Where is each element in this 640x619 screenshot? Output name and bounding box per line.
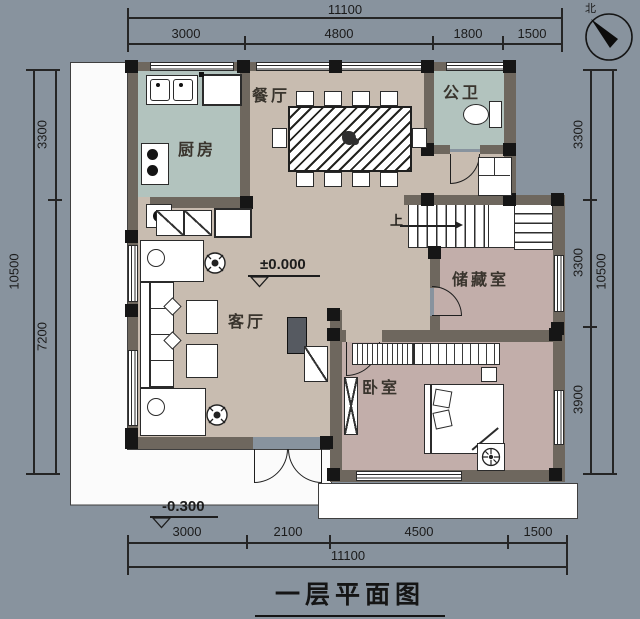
column bbox=[125, 60, 138, 73]
level-marker-label: -0.300 bbox=[162, 498, 205, 515]
wall bbox=[128, 437, 253, 449]
floor-plan-canvas: 11100 3000 4800 1800 1500 3300 7200 1050… bbox=[0, 0, 640, 619]
headboard-line bbox=[430, 385, 432, 453]
dimension-label: 3000 bbox=[146, 27, 226, 41]
dimension-label: 10500 bbox=[595, 232, 608, 312]
hall-closet bbox=[478, 157, 512, 196]
window bbox=[150, 62, 234, 71]
wardrobe bbox=[352, 343, 414, 365]
column bbox=[327, 468, 340, 481]
floor-lamp-icon bbox=[202, 250, 228, 276]
sofa-pillow bbox=[147, 398, 165, 416]
window bbox=[446, 62, 504, 71]
column bbox=[551, 193, 564, 206]
wall bbox=[382, 330, 565, 342]
dimension-line bbox=[128, 17, 562, 19]
dimension-line bbox=[128, 566, 568, 568]
dimension-line bbox=[128, 43, 562, 45]
closet-shelf-line bbox=[494, 157, 495, 175]
dining-chair bbox=[380, 91, 398, 106]
dimension-extension bbox=[127, 8, 129, 52]
column bbox=[421, 60, 434, 73]
toilet-bowl bbox=[463, 104, 489, 125]
sink-basin bbox=[173, 79, 193, 101]
tv-stand bbox=[304, 346, 328, 382]
level-marker-label: ±0.000 bbox=[260, 256, 306, 273]
fridge bbox=[202, 74, 242, 106]
dimension-label: 1500 bbox=[492, 27, 572, 41]
window bbox=[128, 350, 138, 426]
dining-chair bbox=[380, 172, 398, 187]
window bbox=[554, 390, 564, 445]
column bbox=[428, 246, 441, 259]
room-label-storage: 储藏室 bbox=[452, 266, 509, 290]
column bbox=[125, 230, 138, 243]
centerpiece-plant-icon bbox=[352, 138, 359, 145]
column bbox=[237, 60, 250, 73]
closet-shelf-line bbox=[479, 175, 510, 176]
dimension-label: 11100 bbox=[305, 3, 385, 16]
column bbox=[549, 328, 562, 341]
porch-bedroom bbox=[318, 483, 578, 519]
dining-chair bbox=[296, 91, 314, 106]
coffee-table bbox=[186, 344, 218, 378]
north-arrow-icon bbox=[581, 3, 635, 63]
dimension-label: 3300 bbox=[572, 95, 585, 175]
bedroom-tv-cabinet bbox=[344, 377, 358, 435]
dimension-tick bbox=[244, 36, 246, 50]
window bbox=[336, 62, 424, 71]
window bbox=[256, 62, 330, 71]
plan-title: 一层平面图 bbox=[255, 575, 445, 617]
room-label-bedroom: 卧室 bbox=[362, 374, 400, 398]
dining-chair bbox=[296, 172, 314, 187]
room-label-bath: 公卫 bbox=[443, 79, 481, 103]
dimension-line bbox=[55, 70, 57, 474]
column bbox=[421, 193, 434, 206]
dimension-label: 7200 bbox=[36, 297, 49, 377]
dimension-tick bbox=[329, 535, 331, 549]
dimension-line bbox=[128, 542, 568, 544]
column bbox=[125, 304, 138, 317]
room-label-dining: 餐厅 bbox=[252, 82, 290, 106]
room-label-kitchen: 厨房 bbox=[178, 136, 216, 160]
faucet-icon bbox=[156, 83, 160, 87]
dimension-extension bbox=[127, 535, 129, 575]
dimension-label: 3300 bbox=[36, 95, 49, 175]
cabinet bbox=[184, 210, 212, 236]
dimension-label: 1500 bbox=[498, 525, 578, 539]
level-marker-triangle bbox=[250, 276, 270, 288]
stairs-landing bbox=[488, 204, 516, 248]
dimension-extension bbox=[566, 535, 568, 575]
column bbox=[329, 60, 342, 73]
dimension-label: 3900 bbox=[572, 360, 585, 440]
floor-lamp-icon bbox=[204, 402, 230, 428]
stairs-winder bbox=[514, 204, 553, 250]
window bbox=[128, 245, 138, 302]
window bbox=[356, 471, 462, 481]
dimension-label: 11100 bbox=[308, 549, 388, 563]
dining-chair bbox=[272, 128, 287, 148]
dining-chair bbox=[352, 172, 370, 187]
dining-chair bbox=[352, 91, 370, 106]
bed-pillow bbox=[432, 409, 452, 429]
cabinet bbox=[156, 210, 184, 236]
burner-icon bbox=[147, 165, 158, 176]
dimension-label: 4800 bbox=[299, 27, 379, 41]
ceiling-fan-icon bbox=[479, 445, 503, 469]
column bbox=[320, 436, 333, 449]
fridge-handle bbox=[199, 72, 204, 77]
sofa-back bbox=[140, 282, 150, 388]
sink-basin bbox=[150, 79, 170, 101]
dining-chair bbox=[412, 128, 427, 148]
column bbox=[327, 328, 340, 341]
dimension-label: 3300 bbox=[572, 223, 585, 303]
dimension-line bbox=[612, 70, 614, 474]
column bbox=[327, 308, 340, 321]
dimension-label: 4500 bbox=[379, 525, 459, 539]
window bbox=[554, 255, 564, 312]
dimension-line bbox=[590, 70, 592, 474]
coffee-table bbox=[186, 300, 218, 334]
stairs-up-arrow bbox=[400, 225, 456, 227]
level-marker-triangle bbox=[152, 517, 172, 529]
faucet-icon bbox=[179, 83, 183, 87]
stairs-up-arrowhead bbox=[455, 221, 463, 229]
toilet-tank bbox=[489, 101, 502, 128]
column bbox=[503, 143, 516, 156]
room-label-living: 客厅 bbox=[228, 308, 266, 332]
sofa-pillow bbox=[147, 249, 165, 267]
bed-pillow bbox=[433, 389, 453, 409]
dimension-label: 2100 bbox=[248, 525, 328, 539]
column bbox=[503, 60, 516, 73]
nightstand bbox=[481, 367, 497, 382]
dining-chair bbox=[324, 172, 342, 187]
kitchen-appliance bbox=[214, 208, 252, 238]
column bbox=[125, 436, 138, 449]
dining-chair bbox=[324, 91, 342, 106]
wardrobe bbox=[414, 343, 500, 365]
column bbox=[549, 468, 562, 481]
dimension-label: 10500 bbox=[8, 232, 21, 312]
burner-icon bbox=[147, 149, 158, 160]
